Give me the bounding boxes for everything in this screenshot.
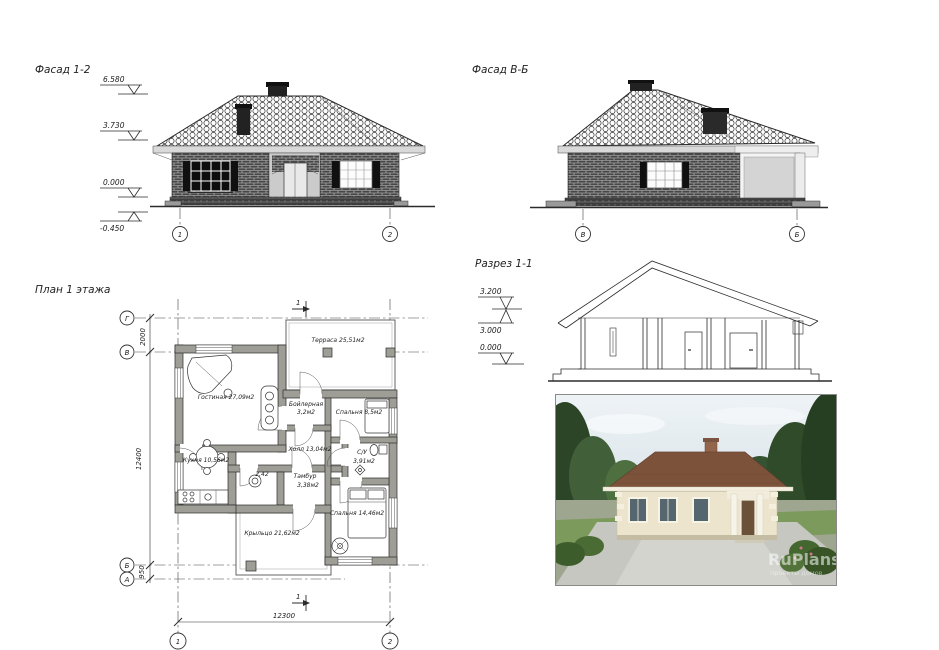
room-kitchen: Кухня 10,56м2 (183, 457, 230, 464)
terrace-outline (286, 320, 395, 390)
axis-label-a: А (124, 576, 130, 584)
cut-mark-top-label: 1 (296, 299, 300, 307)
section-1-1: Разрез 1-1 3.200 3.000 0.000 (475, 258, 832, 381)
level-3000: 3.000 (480, 326, 502, 335)
level-3200: 3.200 (480, 287, 502, 296)
axis-label-2b: 2 (388, 638, 393, 646)
axis-label-v: В (581, 231, 586, 239)
room-bedroom2: Спальня 14,46м2 (330, 510, 384, 517)
plan-title: План 1 этажа (35, 284, 110, 296)
axis-label-v2: В (125, 349, 130, 357)
room-bedroom1: Спальня 8,5м2 (336, 409, 383, 416)
section-levels: 3.200 3.000 0.000 (478, 287, 524, 364)
section-title: Разрез 1-1 (475, 258, 533, 270)
room-wc-area: 3,91м2 (353, 458, 375, 465)
room-tambour-name: Тамбур (294, 473, 317, 480)
room-wc-small: 2,42 (255, 471, 269, 478)
room-tambour-area: 3,38м2 (297, 482, 319, 489)
axis-label-2: 2 (388, 231, 393, 239)
axis-label-1: 1 (178, 231, 182, 239)
dim-2000: 2000 (139, 328, 147, 346)
axis-label-b2: Б (125, 562, 130, 570)
room-terrace: Терраса 25,51м2 (311, 337, 364, 344)
blueprint-svg: Фасад 1-2 6.580 3.730 0.000 -0.450 (0, 0, 939, 650)
room-wc-name: С/У (357, 449, 367, 456)
level-6580: 6.580 (103, 75, 125, 84)
facade-v-b-axes: В Б (576, 209, 805, 242)
watermark-subtitle: проекты домов (770, 569, 823, 577)
level-3730: 3.730 (103, 121, 125, 130)
level-minus-0450: -0.450 (100, 224, 124, 233)
section-drawing (548, 261, 832, 381)
room-living: Гостиная 27,09м2 (198, 394, 255, 401)
drawing-sheet: Фасад 1-2 6.580 3.730 0.000 -0.450 (0, 0, 939, 650)
photo-render: RuPlans проекты домов (537, 392, 857, 586)
facade-v-b-title: Фасад В-Б (472, 64, 528, 76)
dim-12400: 12400 (135, 447, 143, 470)
facade-1-2-axes: 1 2 (173, 208, 398, 242)
facade-1-2-title: Фасад 1-2 (35, 64, 91, 76)
room-boiler-area: 3,2м2 (297, 409, 315, 416)
level-0000-s: 0.000 (480, 343, 502, 352)
facade-1-2: Фасад 1-2 6.580 3.730 0.000 -0.450 (35, 64, 435, 242)
watermark-logo: RuPlans (768, 550, 841, 569)
level-0000: 0.000 (103, 178, 125, 187)
cut-mark-bottom-label: 1 (296, 593, 300, 601)
room-hall: Холл 13,04м2 (288, 446, 332, 453)
dim-12300: 12300 (273, 612, 296, 620)
porch-outline (236, 513, 331, 575)
facade-v-b: Фасад В-Б (472, 64, 828, 242)
floor-plan: План 1 этажа (35, 284, 428, 649)
facade-1-2-levels: 6.580 3.730 0.000 -0.450 (100, 75, 148, 233)
dim-950: 950 (138, 565, 146, 579)
axis-label-b: Б (795, 231, 800, 239)
facade-v-b-drawing (530, 80, 828, 208)
room-boiler-name: Бойлерная (289, 401, 324, 408)
facade-1-2-drawing (150, 82, 435, 207)
room-porch: Крыльцо 21,62м2 (244, 530, 300, 537)
axis-label-1b: 1 (176, 638, 180, 646)
